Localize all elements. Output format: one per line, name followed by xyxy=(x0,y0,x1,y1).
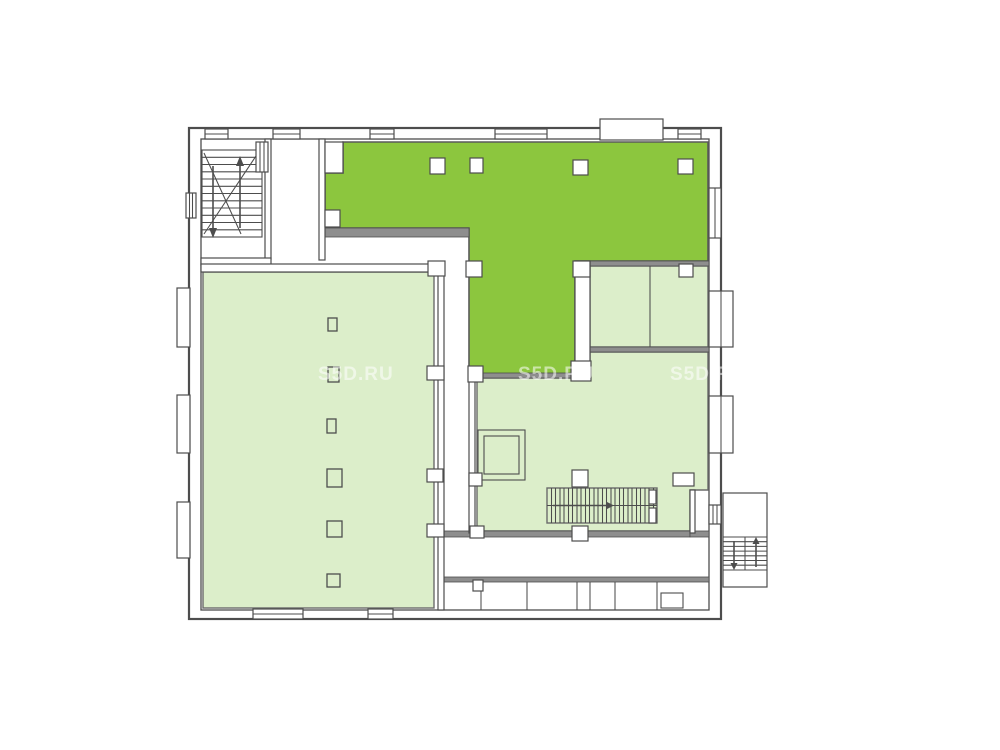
floor-plan-page: S5D.RU S5D.RU S5D.RU xyxy=(0,0,1000,750)
external-staircase-bottom-right xyxy=(723,493,767,587)
rooms-top-right xyxy=(590,266,708,347)
room-left-hall xyxy=(203,272,434,608)
elevator-shaft xyxy=(256,142,268,172)
top-wall-projection xyxy=(600,119,663,140)
watermark-text: S5D.RU xyxy=(318,364,394,385)
stair-window xyxy=(186,193,196,218)
right-wall-door xyxy=(709,505,721,524)
floor-plan-drawing: S5D.RU S5D.RU S5D.RU xyxy=(0,0,1000,750)
watermark-text: S5D.RU xyxy=(518,364,594,385)
watermark-text: S5D.RU xyxy=(670,364,746,385)
internal-staircase xyxy=(547,488,657,523)
